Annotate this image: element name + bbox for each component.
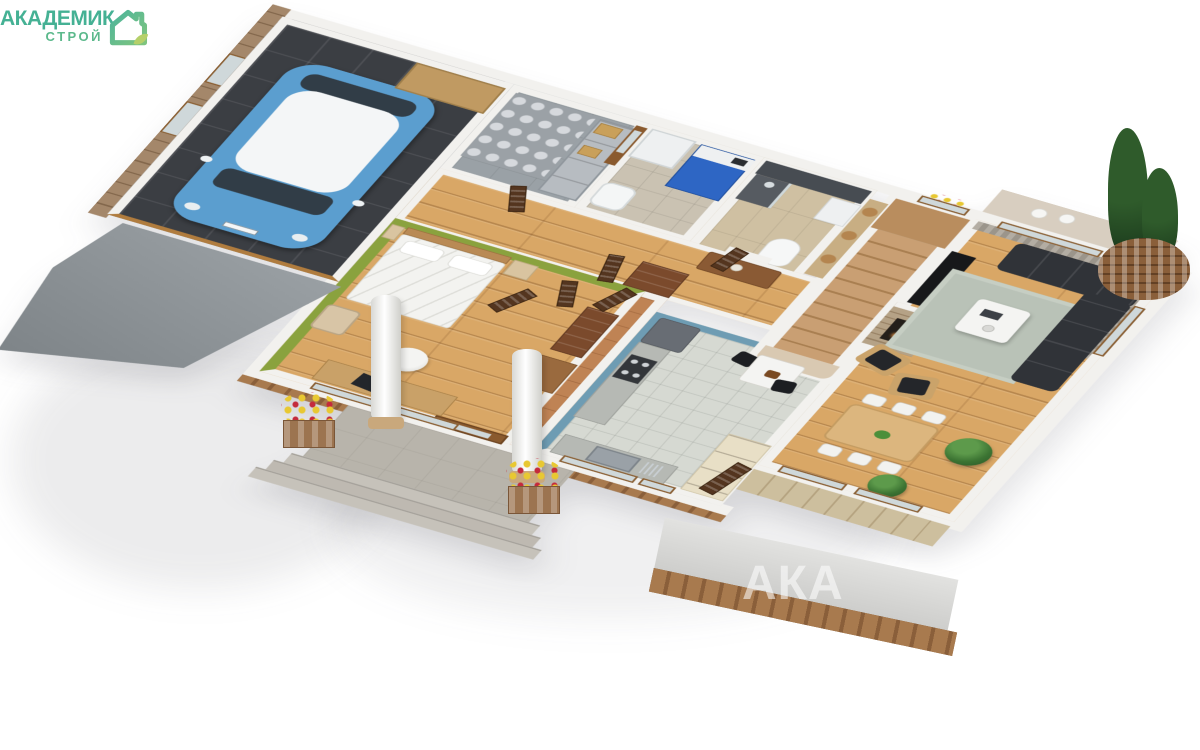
table-bowl (980, 324, 997, 334)
shower-head (762, 181, 776, 189)
house-leaf-icon (106, 6, 150, 50)
car-headlight-right (290, 232, 310, 243)
bistro-table-dish (763, 369, 782, 379)
watermark: АКА (742, 556, 844, 611)
armchair-2-cushion (896, 377, 931, 396)
fruit-bowl (872, 429, 893, 441)
cypress-tree-tall (1108, 128, 1148, 256)
porch-column-left (371, 295, 401, 421)
porch-column-right (512, 349, 542, 475)
logo: АКАДЕМИК СТРОЙ (0, 6, 160, 58)
planter-right (508, 486, 560, 514)
armchair-1-cushion (863, 349, 903, 372)
car-headlight-left (182, 201, 202, 212)
planter-left (283, 420, 335, 448)
magazines (979, 309, 1003, 321)
logo-title: АКАДЕМИК (0, 8, 114, 29)
storage-door-leaf (508, 186, 527, 213)
cypress-planter (1098, 238, 1190, 300)
logo-subtitle: СТРОЙ (0, 30, 103, 43)
floor-plan-render: АКА АКАДЕМИК СТРОЙ (0, 0, 1200, 750)
porch-column-left-base (368, 417, 404, 429)
